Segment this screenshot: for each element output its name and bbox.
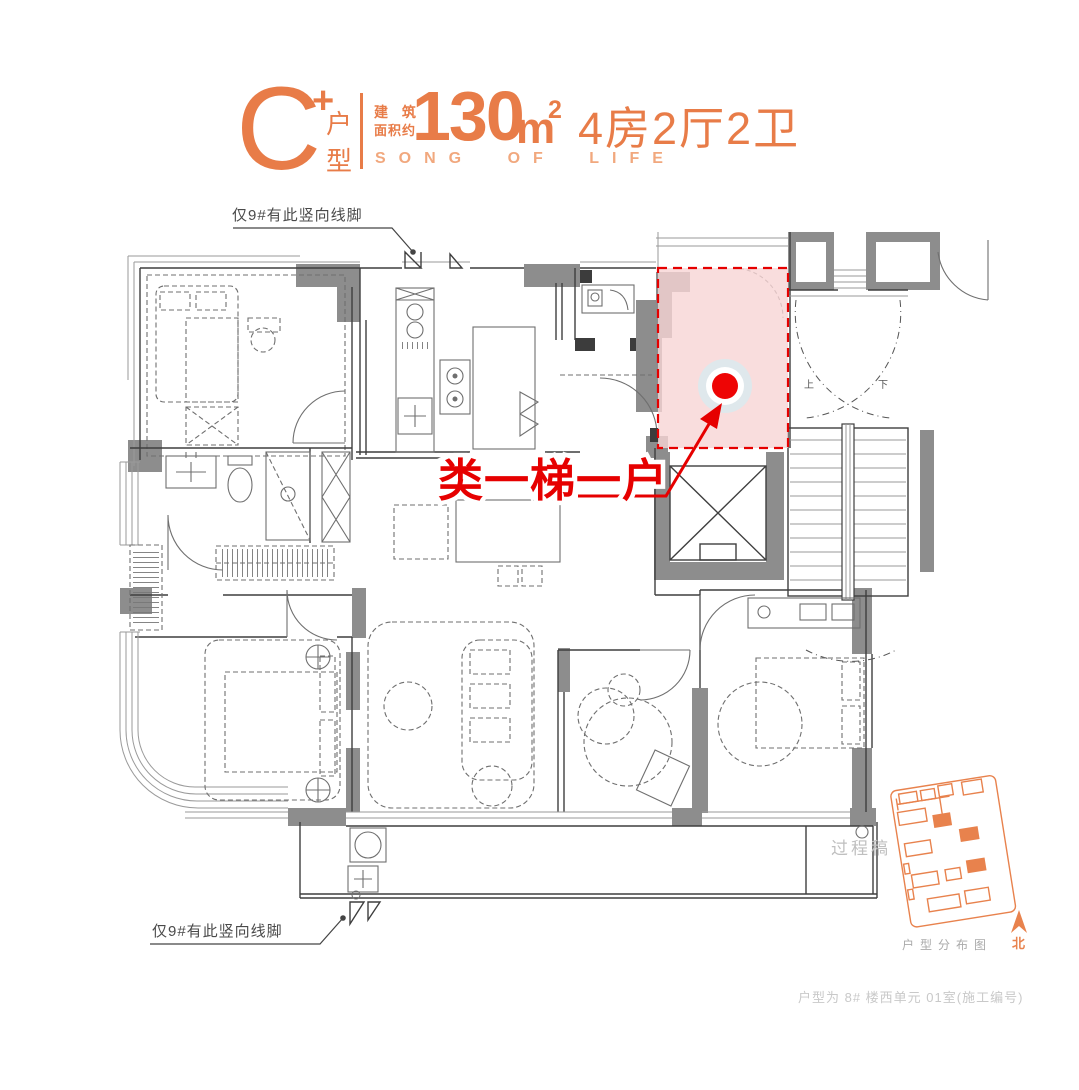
ceiling-symbol <box>306 645 330 669</box>
note-top: 仅9#有此竖向线脚 <box>232 207 416 255</box>
note-bottom: 仅9#有此竖向线脚 <box>150 915 346 944</box>
north-label: 北 <box>1012 936 1025 951</box>
watermark-text: 过程稿 <box>831 839 891 858</box>
highlight-overlay: 类一梯一户 <box>438 268 788 506</box>
duct-box <box>322 452 350 542</box>
plan-walls <box>120 232 940 826</box>
stairs-up-label: 上 <box>804 379 814 391</box>
footer-caption: 户型为 8# 楼西单元 01室(施工编号) <box>798 987 1023 1006</box>
site-plan: 户型分布图 北 <box>890 775 1027 952</box>
stairs-down-label: 下 <box>878 380 888 391</box>
closet-box <box>186 407 238 445</box>
note-top-text: 仅9#有此竖向线脚 <box>232 207 363 224</box>
elevator-shaft <box>670 466 766 560</box>
highlight-label: 类一梯一户 <box>438 455 668 506</box>
floor-plan: 上 下 <box>0 0 1079 1090</box>
site-plan-caption: 户型分布图 <box>902 937 992 952</box>
highlight-zone <box>658 268 788 448</box>
location-dot-icon <box>698 359 752 413</box>
ceiling-symbol <box>306 778 330 802</box>
stairwell: 上 下 <box>788 379 908 661</box>
note-bottom-text: 仅9#有此竖向线脚 <box>152 923 283 940</box>
site-plan-outline <box>890 775 1016 928</box>
north-arrow-icon <box>1011 910 1027 933</box>
